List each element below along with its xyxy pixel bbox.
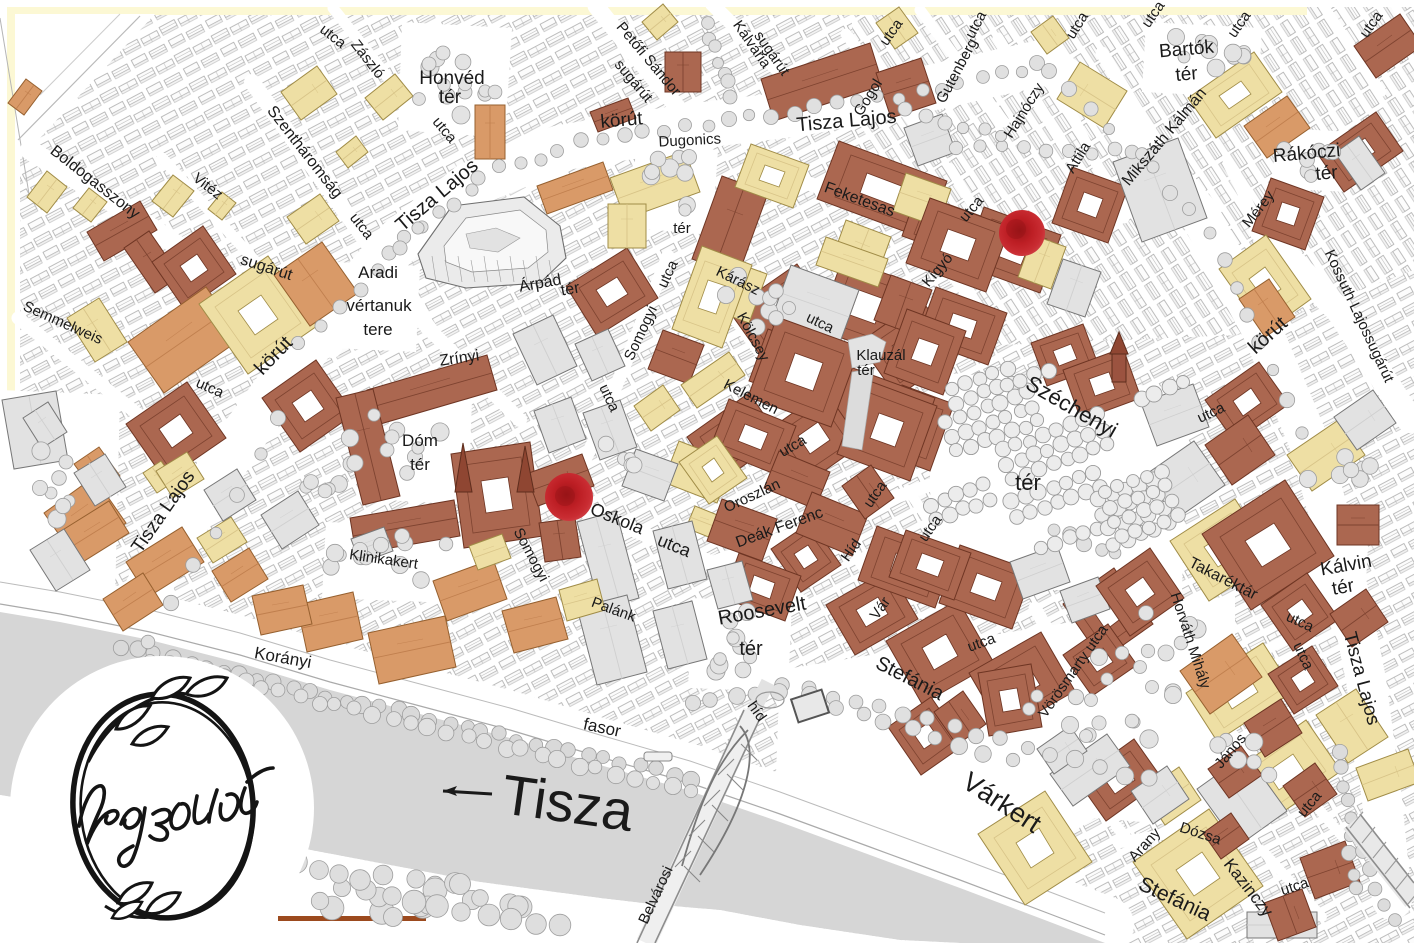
svg-text:Honvéd: Honvéd [419,68,485,89]
svg-text:tér: tér [857,362,875,379]
svg-text:tér: tér [1315,162,1340,185]
svg-text:tér: tér [439,87,462,108]
svg-text:tér: tér [1330,575,1356,600]
svg-text:tere: tere [363,320,392,339]
svg-text:tér: tér [410,455,430,474]
svg-text:tér: tér [560,279,582,299]
svg-text:Dóm: Dóm [402,431,438,450]
svg-text:körút: körút [600,108,645,133]
svg-text:Aradi: Aradi [358,263,398,282]
svg-text:tér: tér [1175,63,1200,86]
svg-text:Dugonics: Dugonics [658,130,721,150]
svg-text:vértanuk: vértanuk [346,296,412,315]
svg-text:tér: tér [673,220,691,237]
svg-text:tér: tér [1015,470,1041,495]
svg-text:tér: tér [739,638,763,660]
